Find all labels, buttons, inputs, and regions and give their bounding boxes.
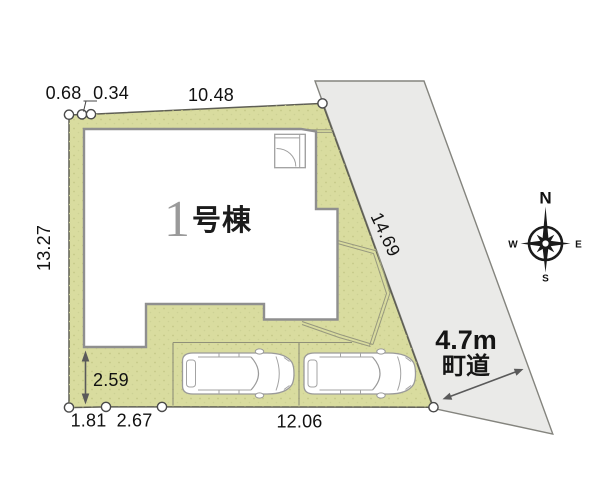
compass-north-label: N <box>539 189 551 208</box>
dim-top-edge: 10.48 <box>188 85 234 105</box>
road-width-label: 4.7m <box>435 325 497 355</box>
dim-top-offset-a: 0.68 <box>46 83 82 103</box>
site-plan-drawing: 0.68 0.34 10.48 13.27 14.69 2.59 1.81 2.… <box>0 0 600 501</box>
dim-west-edge: 13.27 <box>34 225 54 271</box>
car-icon <box>183 349 295 398</box>
dim-top-offset-b: 0.34 <box>93 83 129 103</box>
building-name-suffix: 号棟 <box>192 204 252 237</box>
site-plan-canvas: 0.68 0.34 10.48 13.27 14.69 2.59 1.81 2.… <box>0 0 600 501</box>
road-type-label: 町道 <box>442 352 490 380</box>
dim-south-a: 1.81 <box>71 411 107 431</box>
dim-south-b: 2.67 <box>117 411 153 431</box>
compass-south-label: S <box>542 274 549 285</box>
dim-south-gap: 2.59 <box>93 370 129 390</box>
entrance-door-icon <box>275 134 306 167</box>
compass-west-label: W <box>508 240 518 251</box>
building-number: 1 <box>164 191 190 248</box>
car-icon <box>304 349 416 398</box>
compass-icon: N E S W <box>508 189 582 285</box>
compass-east-label: E <box>575 240 582 251</box>
dim-south-c: 12.06 <box>276 412 322 432</box>
